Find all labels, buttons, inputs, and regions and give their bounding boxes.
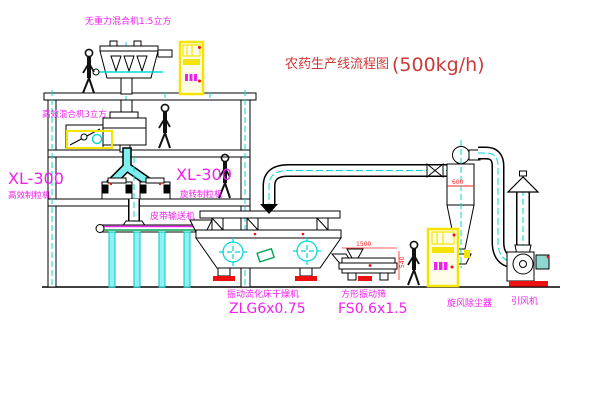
label-left-granulator-name: 高效制粒机 <box>8 190 51 201</box>
label-dryer-model: ZLG6x0.75 <box>229 301 306 317</box>
dim-screen-height: 540 <box>399 256 406 268</box>
spring-mounts <box>212 218 328 230</box>
cabinet-panel-marks <box>185 74 197 81</box>
process-flow-drawing: 农药生产线流程图 (500kg/h) 无重力混合机1.5立方 高效混合机3立方 … <box>0 0 600 403</box>
gravity-free-mixer <box>93 41 172 94</box>
diagram-title-capacity: (500kg/h) <box>392 54 485 76</box>
cabinet-panel-marks <box>434 262 448 270</box>
conveyor-legs <box>109 232 190 287</box>
label-screen-model: FS0.6x1.5 <box>338 301 408 317</box>
flow-diagram-canvas: 农药生产线流程图 (500kg/h) 无重力混合机1.5立方 高效混合机3立方 … <box>0 0 600 403</box>
mixer-funnels <box>111 56 147 71</box>
person-figure-second-floor <box>159 104 170 148</box>
fluid-bed-dryer <box>190 211 352 281</box>
control-cabinet-top <box>180 42 203 94</box>
vibrating-screen <box>339 248 399 281</box>
induced-draft-fan <box>507 252 549 287</box>
person-figure-top-floor <box>83 49 94 93</box>
belt-conveyor <box>96 225 197 288</box>
label-gravity-free-mixer: 无重力混合机1.5立方 <box>85 15 171 27</box>
rain-cap <box>508 177 538 192</box>
control-cabinet-ground <box>428 229 458 286</box>
label-mid-granulator-model: XL-300 <box>176 165 232 184</box>
label-high-efficiency-mixer: 高效混合机3立方 <box>42 109 107 120</box>
person-figure-ground <box>408 241 419 285</box>
label-fan: 引风机 <box>511 295 538 307</box>
cyclone-to-fan-duct <box>478 153 520 262</box>
label-left-granulator-model: XL-300 <box>8 169 64 188</box>
label-mid-granulator-name: 旋转制粒机 <box>180 189 223 200</box>
label-screen-name: 方形振动筛 <box>341 288 386 300</box>
dim-cyclone-diameter: 600 <box>452 179 464 186</box>
exhaust-duct <box>260 164 452 214</box>
dim-screen-length: 1500 <box>356 241 371 248</box>
label-cyclone: 旋风除尘器 <box>447 297 492 309</box>
second-floor-mixer <box>66 100 146 152</box>
diagram-title: 农药生产线流程图 <box>285 57 389 72</box>
fan-base-pad <box>509 281 548 287</box>
label-dryer-name: 振动流化床干燥机 <box>227 288 299 300</box>
label-belt-conveyor: 皮带输送机 <box>150 210 195 222</box>
